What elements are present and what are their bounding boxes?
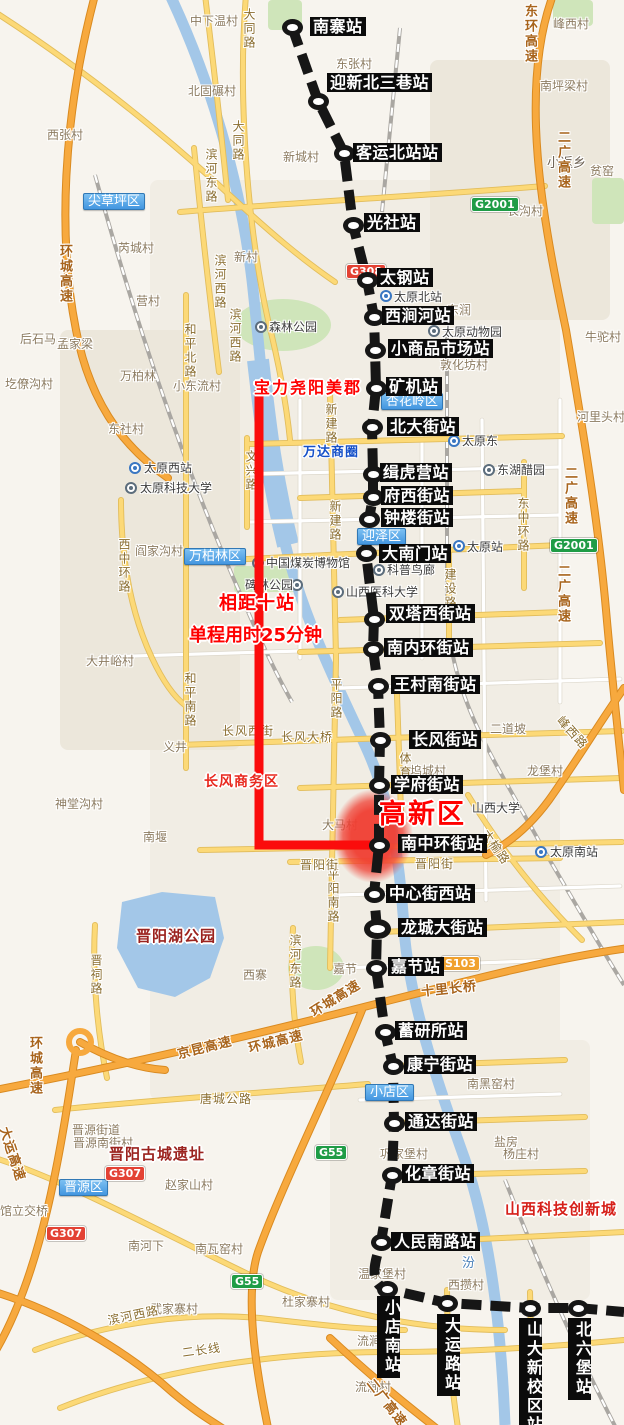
hi-tech-zone-highlight	[333, 789, 413, 883]
map-canvas[interactable]: 中下温村北固碾村西张村东张村新城村峰西村南坪梁村小返乡贫窑长沟村新村芮城村营村东…	[0, 0, 624, 1425]
basemap	[0, 0, 624, 1425]
